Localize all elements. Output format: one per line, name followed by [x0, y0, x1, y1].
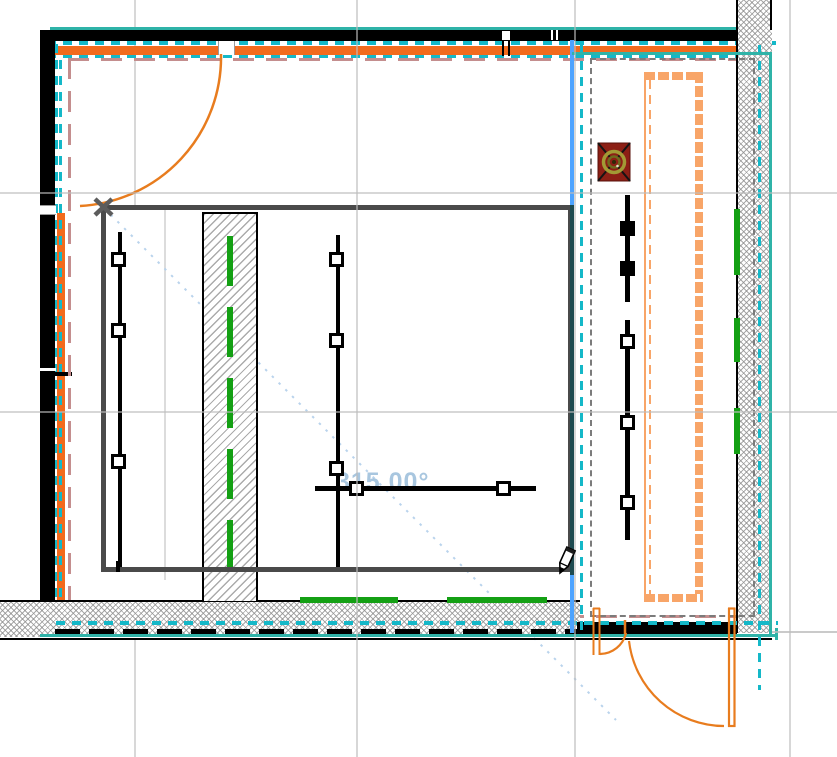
cad-canvas[interactable]: 315.00° [0, 0, 837, 757]
cursor-layer [0, 0, 837, 757]
snap-cross-icon [95, 199, 112, 215]
pencil-cursor-icon [559, 547, 575, 573]
